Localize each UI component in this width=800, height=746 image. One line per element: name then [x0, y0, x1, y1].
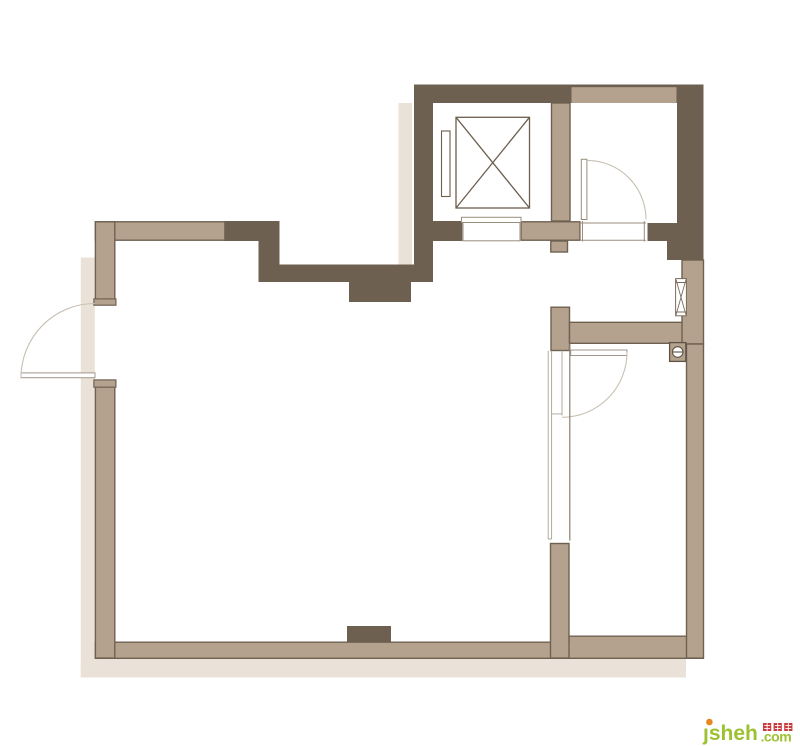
- svg-text:ȷsheh: ȷsheh: [702, 722, 758, 745]
